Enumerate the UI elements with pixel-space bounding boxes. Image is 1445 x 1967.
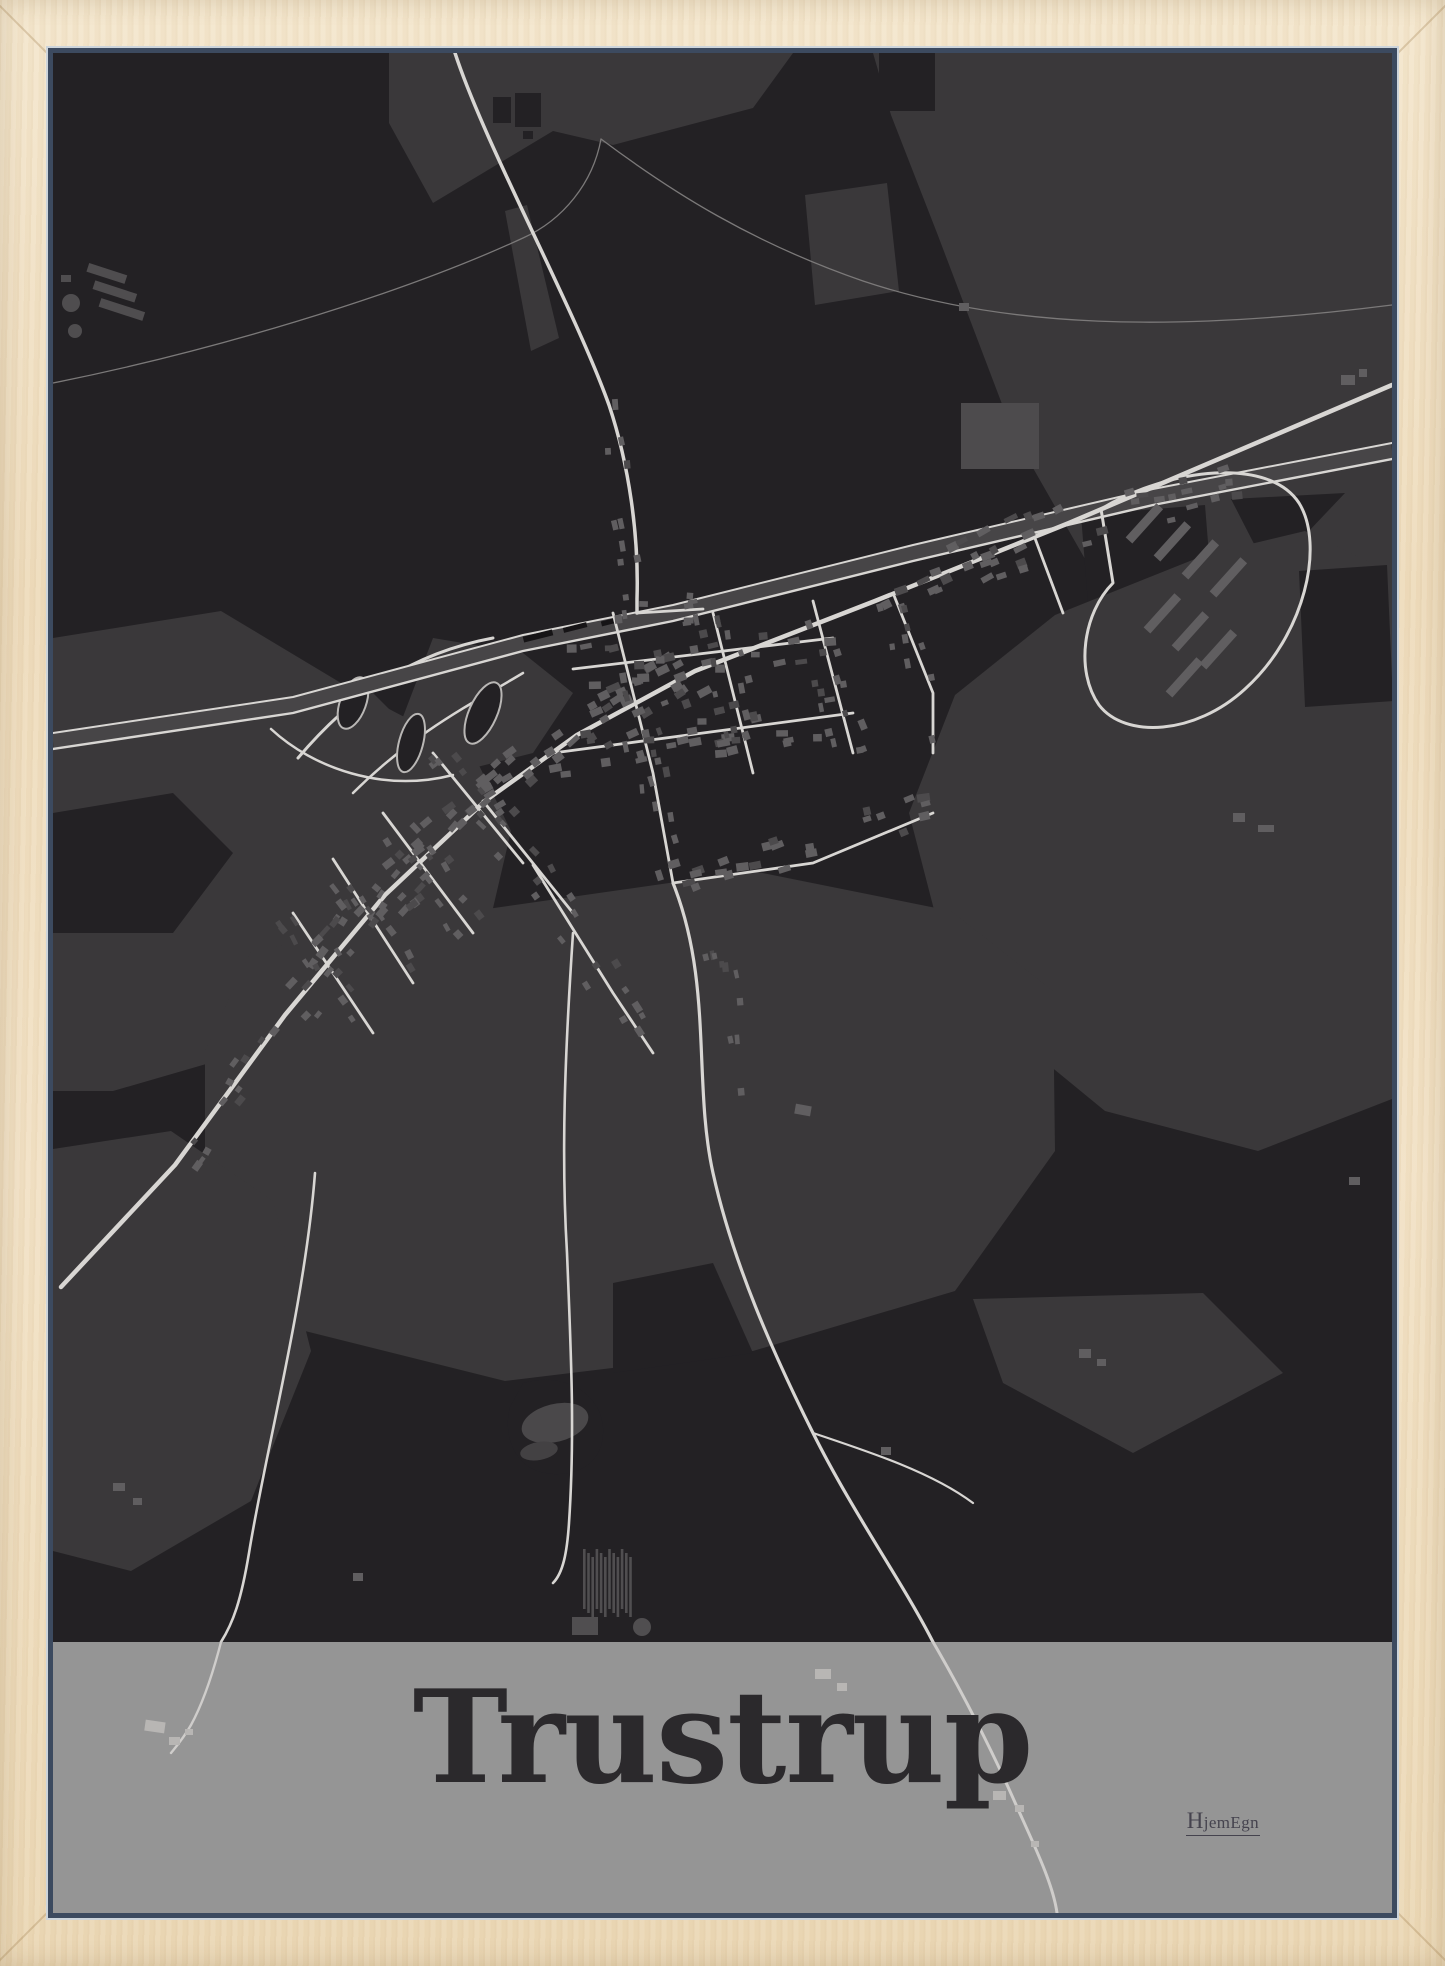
poster-artwork: Trustrup HjemEgn — [48, 48, 1397, 1918]
title-band — [53, 1642, 1392, 1913]
frame-miter-joint — [1395, 1910, 1445, 1967]
frame-miter-joint — [0, 1910, 50, 1967]
frame-miter-joint — [0, 0, 50, 56]
frame-miter-joint — [1395, 0, 1445, 56]
wooden-picture-frame: Trustrup HjemEgn — [0, 0, 1445, 1966]
trustrup-map-graphic — [53, 53, 1392, 1913]
